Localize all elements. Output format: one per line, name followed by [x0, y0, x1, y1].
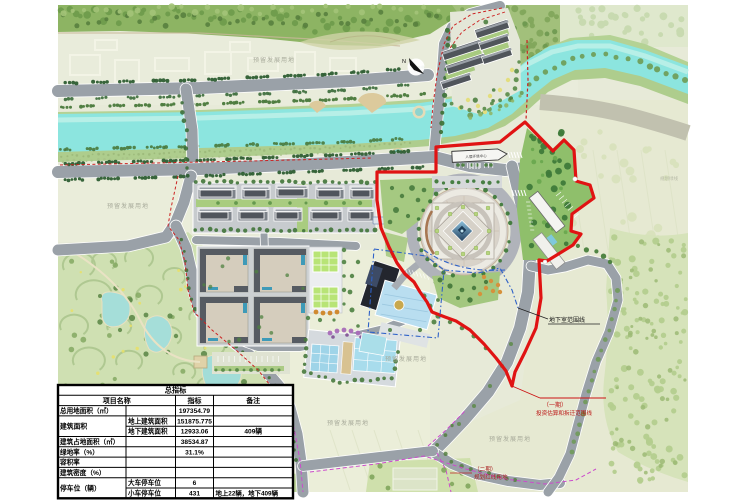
- svg-text:地上22辆，地下409辆: 地上22辆，地下409辆: [216, 489, 279, 498]
- svg-text:指标: 指标: [188, 396, 202, 405]
- svg-text:（一期）: （一期）: [543, 401, 567, 409]
- svg-text:总指标: 总指标: [165, 386, 187, 395]
- svg-text:建筑密度（%）: 建筑密度（%）: [59, 468, 105, 477]
- svg-text:停车位（辆）: 停车位（辆）: [60, 483, 101, 492]
- svg-text:38534.87: 38534.87: [181, 439, 209, 446]
- svg-text:409辆: 409辆: [244, 427, 262, 436]
- svg-text:规划绿线: 规划绿线: [660, 175, 678, 182]
- svg-text:地上建筑面积: 地上建筑面积: [128, 416, 168, 425]
- svg-text:预留发展用地: 预留发展用地: [489, 435, 531, 443]
- svg-text:建筑面积: 建筑面积: [59, 422, 87, 431]
- svg-text:地下室范围线: 地下室范围线: [549, 316, 585, 324]
- svg-text:小车停车位: 小车停车位: [128, 489, 161, 498]
- svg-text:31.1%: 31.1%: [185, 449, 204, 456]
- svg-text:151875.775: 151875.775: [177, 418, 212, 425]
- svg-text:规划红线用地: 规划红线用地: [474, 473, 508, 481]
- svg-text:12933.06: 12933.06: [181, 429, 209, 436]
- svg-text:预留发展用地: 预留发展用地: [385, 355, 427, 363]
- svg-text:6: 6: [193, 480, 197, 487]
- svg-text:总用地面积（㎡）: 总用地面积（㎡）: [60, 406, 113, 415]
- svg-text:预留发展用地: 预留发展用地: [327, 419, 369, 427]
- svg-text:地下建筑面积: 地下建筑面积: [128, 427, 168, 436]
- svg-text:容积率: 容积率: [59, 458, 80, 467]
- svg-text:197354.79: 197354.79: [179, 408, 211, 415]
- svg-text:N: N: [402, 59, 406, 65]
- svg-text:431: 431: [189, 491, 200, 498]
- svg-text:（二期）: （二期）: [474, 466, 496, 473]
- svg-text:绿地率（%）: 绿地率（%）: [60, 447, 99, 456]
- svg-text:预留发展用地: 预留发展用地: [107, 202, 149, 210]
- svg-text:建筑占地面积（㎡）: 建筑占地面积（㎡）: [59, 437, 119, 446]
- svg-text:大车停车位: 大车停车位: [128, 478, 161, 487]
- svg-text:项目名称: 项目名称: [103, 396, 131, 405]
- svg-text:备注: 备注: [245, 396, 260, 405]
- svg-text:投资估算和拆迁范围线: 投资估算和拆迁范围线: [536, 409, 592, 417]
- svg-text:预留发展用地: 预留发展用地: [253, 56, 295, 64]
